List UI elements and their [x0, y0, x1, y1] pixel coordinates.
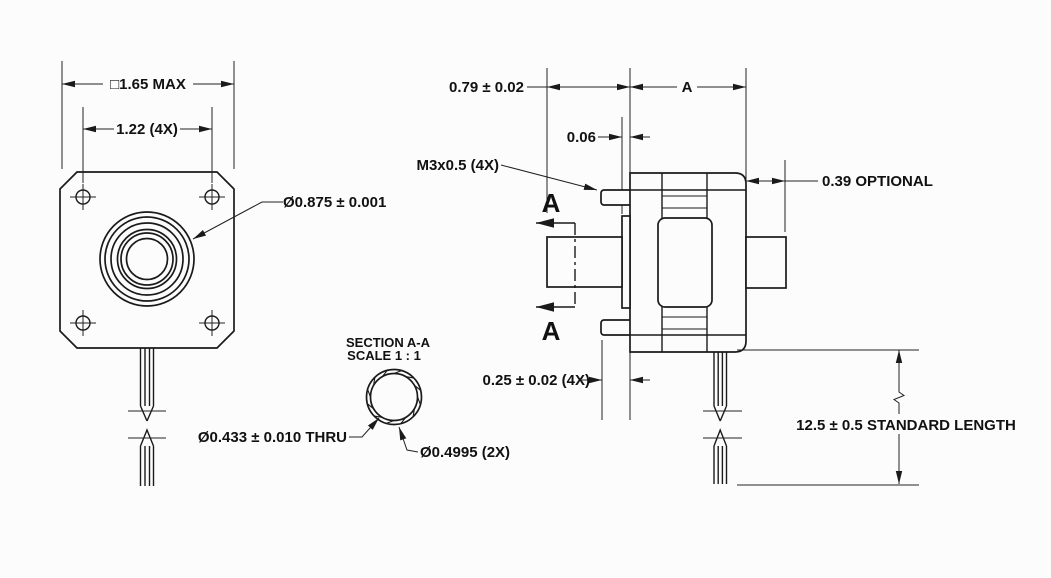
dim-pilot-height: 0.06 — [567, 129, 650, 146]
label-bore: Ø0.433 ± 0.010 THRU — [198, 429, 347, 446]
leader-line — [501, 165, 597, 190]
leader-line — [349, 418, 379, 437]
section-bore-circle — [371, 374, 418, 421]
label-mount-ear: 0.25 ± 0.02 (4X) — [483, 372, 590, 389]
label-thread: M3x0.5 (4X) — [416, 157, 499, 174]
wire-lines — [714, 352, 727, 484]
front-view: □1.65 MAX 1.22 (4X) Ø0.875 ± 0.001 — [60, 61, 386, 486]
label-shaft-extension: 0.79 ± 0.02 — [449, 79, 524, 96]
front-shaft — [547, 237, 622, 287]
leader-outer-diameter: Ø0.4995 (2X) — [399, 427, 510, 461]
leader-thread: M3x0.5 (4X) — [416, 157, 597, 190]
label-hole-spacing: 1.22 (4X) — [116, 121, 178, 138]
wire-break-ticks — [128, 411, 166, 438]
wire-lines — [141, 348, 154, 486]
front-lead-wires — [128, 348, 166, 486]
drawing-canvas: □1.65 MAX 1.22 (4X) Ø0.875 ± 0.001 SECTI… — [0, 0, 1051, 578]
dim-rear-shaft: 0.39 OPTIONAL — [746, 173, 933, 190]
section-letter-bottom: A — [542, 316, 561, 346]
section-view: SECTION A-A SCALE 1 : 1 Ø0.433 ± 0.010 T… — [198, 335, 510, 461]
label-motor-length: A — [682, 79, 693, 96]
leader-bore: Ø0.433 ± 0.010 THRU — [198, 418, 379, 446]
engineering-drawing-page: □1.65 MAX 1.22 (4X) Ø0.875 ± 0.001 SECTI… — [0, 0, 1051, 578]
mount-ear-top — [601, 190, 633, 205]
dim-shaft-extension-and-length: 0.79 ± 0.02 A — [449, 78, 746, 96]
label-flange-size: □1.65 MAX — [110, 76, 186, 93]
dim-lead-length: 12.5 ± 0.5 STANDARD LENGTH — [737, 350, 1020, 485]
mount-ear-bottom — [601, 320, 633, 335]
rear-shaft-stub — [746, 237, 786, 288]
label-outer-diameter: Ø0.4995 (2X) — [420, 444, 510, 461]
section-hatching — [367, 370, 420, 423]
side-lead-wires — [703, 352, 742, 484]
label-rear-shaft: 0.39 OPTIONAL — [822, 173, 933, 190]
pilot-boss-edge — [622, 216, 630, 308]
dim-flange-size: □1.65 MAX — [62, 61, 234, 169]
side-view: A A 0.79 ± 0.02 A 0.06 M3x0.5 — [416, 68, 1020, 485]
label-pilot-height: 0.06 — [567, 129, 596, 146]
label-lead-length: 12.5 ± 0.5 STANDARD LENGTH — [796, 417, 1016, 434]
dim-mount-ear: 0.25 ± 0.02 (4X) — [483, 372, 650, 389]
label-pilot-diameter: Ø0.875 ± 0.001 — [283, 194, 386, 211]
section-scale: SCALE 1 : 1 — [347, 348, 421, 363]
leader-line — [399, 427, 418, 452]
section-letter-top: A — [542, 188, 561, 218]
stator-center-block — [658, 218, 712, 307]
front-flange-outline — [60, 172, 234, 348]
